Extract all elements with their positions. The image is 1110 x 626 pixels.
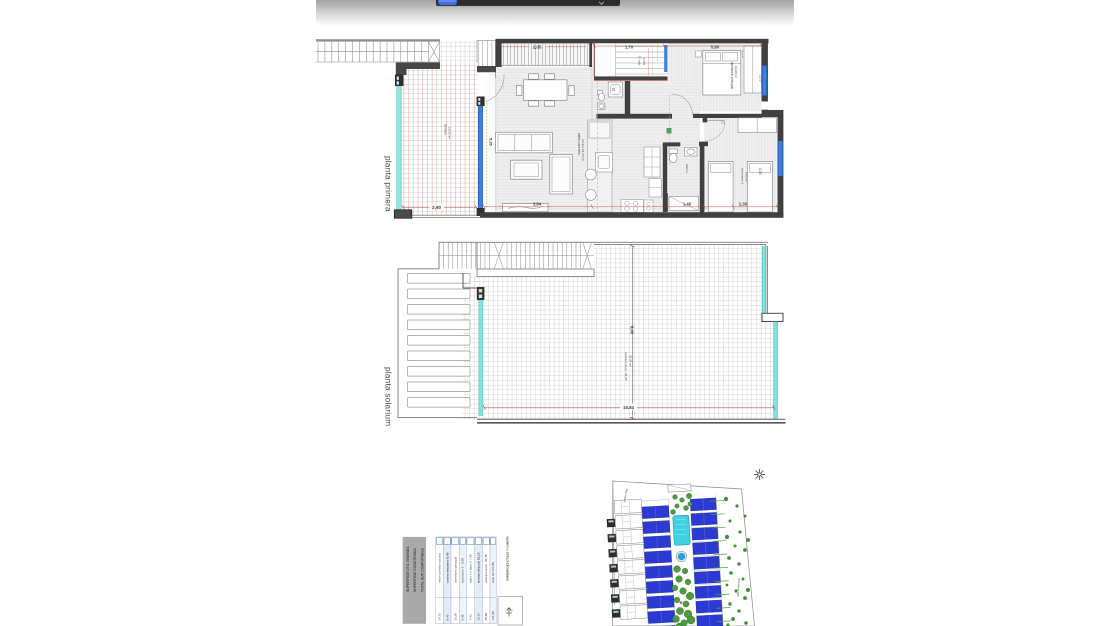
svg-text:SUPERFICIE CONSTRUIDA: SUPERFICIE CONSTRUIDA (413, 548, 417, 592)
svg-text:TOTAL SUP. COMPUTABLE: TOTAL SUP. COMPUTABLE (421, 547, 425, 592)
svg-text:N: N (511, 609, 513, 613)
svg-text:16,10: 16,10 (476, 612, 480, 620)
svg-text:16,10 m²: 16,10 m² (448, 127, 452, 139)
svg-text:SUPERFICIE ÚTIL VIVIENDA: SUPERFICIE ÚTIL VIVIENDA (405, 546, 410, 592)
svg-text:2,75: 2,75 (759, 75, 763, 82)
svg-text:10,90: 10,90 (453, 612, 457, 620)
svg-text:baño 2: baño 2 (685, 164, 689, 173)
svg-text:3,05: 3,05 (758, 168, 762, 175)
svg-text:cocina-lavadero 8,45: cocina-lavadero 8,45 (445, 552, 449, 583)
svg-text:2,30: 2,30 (739, 202, 748, 207)
svg-text:CALLE: CALLE (714, 556, 719, 566)
svg-text:planta solarium: planta solarium (384, 367, 393, 426)
svg-text:terraza: terraza (444, 124, 448, 135)
svg-text:terraza descub 16,10: terraza descub 16,10 (476, 552, 480, 583)
svg-text:15,84: 15,84 (623, 405, 635, 410)
svg-text:dormitorio principal: dormitorio principal (730, 62, 734, 89)
svg-text:dormitorio 2 · 8,95: dormitorio 2 · 8,95 (461, 558, 465, 583)
svg-text:10,90 m²: 10,90 m² (734, 66, 738, 78)
svg-text:dormitorio principal: dormitorio principal (453, 557, 457, 583)
svg-text:8,95: 8,95 (461, 614, 465, 620)
svg-text:salón-comedor: salón-comedor (577, 133, 581, 156)
svg-text:45,35: 45,35 (484, 612, 488, 620)
svg-text:8,40: 8,40 (630, 326, 635, 335)
svg-text:baño 1 y baño 2 7,40: baño 1 y baño 2 7,40 (469, 554, 473, 583)
svg-text:estar-comedor-cocina: estar-comedor-cocina (438, 553, 442, 583)
svg-text:SUPERFICIES ÚTILES Y CONSTR.: SUPERFICIES ÚTILES Y CONSTR. (504, 536, 509, 581)
svg-text:5,25: 5,25 (489, 138, 494, 147)
svg-text:solarium desc. 45,35: solarium desc. 45,35 (484, 554, 488, 583)
svg-text:cocina 24,70 m²: cocina 24,70 m² (581, 139, 585, 161)
svg-text:planta primera: planta primera (384, 156, 393, 212)
svg-text:total útil 121,85: total útil 121,85 (491, 562, 495, 583)
svg-text:121,85: 121,85 (491, 611, 495, 621)
svg-text:17 sub.: 17 sub. (638, 56, 642, 66)
svg-text:1,40: 1,40 (683, 202, 692, 207)
svg-text:0,275: 0,275 (642, 58, 646, 65)
svg-text:45,35 m²: 45,35 m² (629, 355, 633, 366)
svg-text:8,45: 8,45 (445, 614, 449, 620)
svg-text:dormitorio 2: dormitorio 2 (741, 168, 745, 185)
svg-text:8,95 m²: 8,95 m² (745, 172, 749, 182)
svg-text:7,40: 7,40 (469, 614, 473, 620)
svg-text:24,70: 24,70 (438, 612, 442, 620)
svg-text:solarium desc. 45,35: solarium desc. 45,35 (624, 352, 628, 381)
svg-text:5,80: 5,80 (711, 44, 720, 49)
svg-text:2,90: 2,90 (432, 205, 441, 210)
svg-text:2,05: 2,05 (533, 45, 542, 50)
svg-text:1,70: 1,70 (625, 44, 634, 49)
svg-text:3,84: 3,84 (533, 202, 542, 207)
